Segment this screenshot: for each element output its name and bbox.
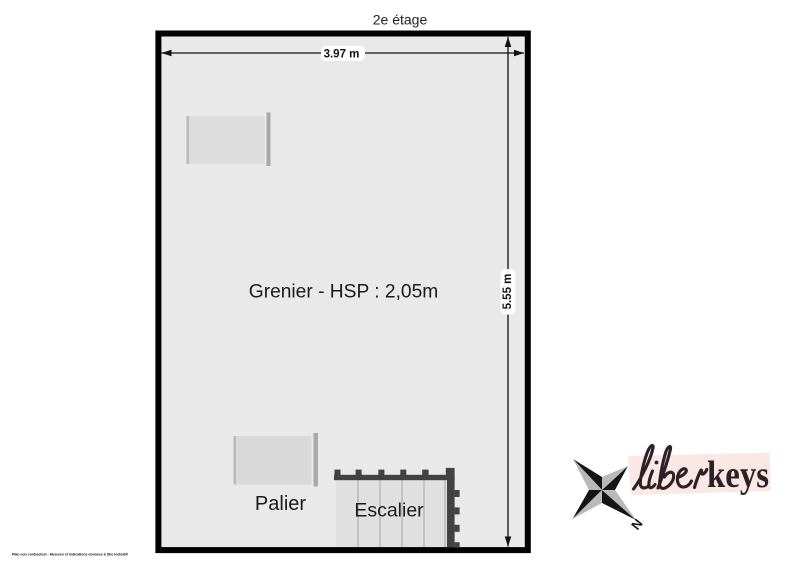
svg-text:Grenier - HSP : 2,05m: Grenier - HSP : 2,05m bbox=[249, 282, 438, 303]
svg-text:keys: keys bbox=[707, 454, 769, 496]
svg-text:3.97 m: 3.97 m bbox=[324, 49, 360, 61]
svg-text:5.55 m: 5.55 m bbox=[502, 274, 514, 310]
svg-text:Palier: Palier bbox=[255, 493, 306, 515]
svg-text:Escalier: Escalier bbox=[354, 500, 424, 522]
svg-text:Plan non contractuel - Mesures: Plan non contractuel - Mesures et indica… bbox=[12, 553, 129, 557]
svg-text:2e étage: 2e étage bbox=[373, 12, 428, 28]
svg-text:N: N bbox=[628, 516, 646, 533]
